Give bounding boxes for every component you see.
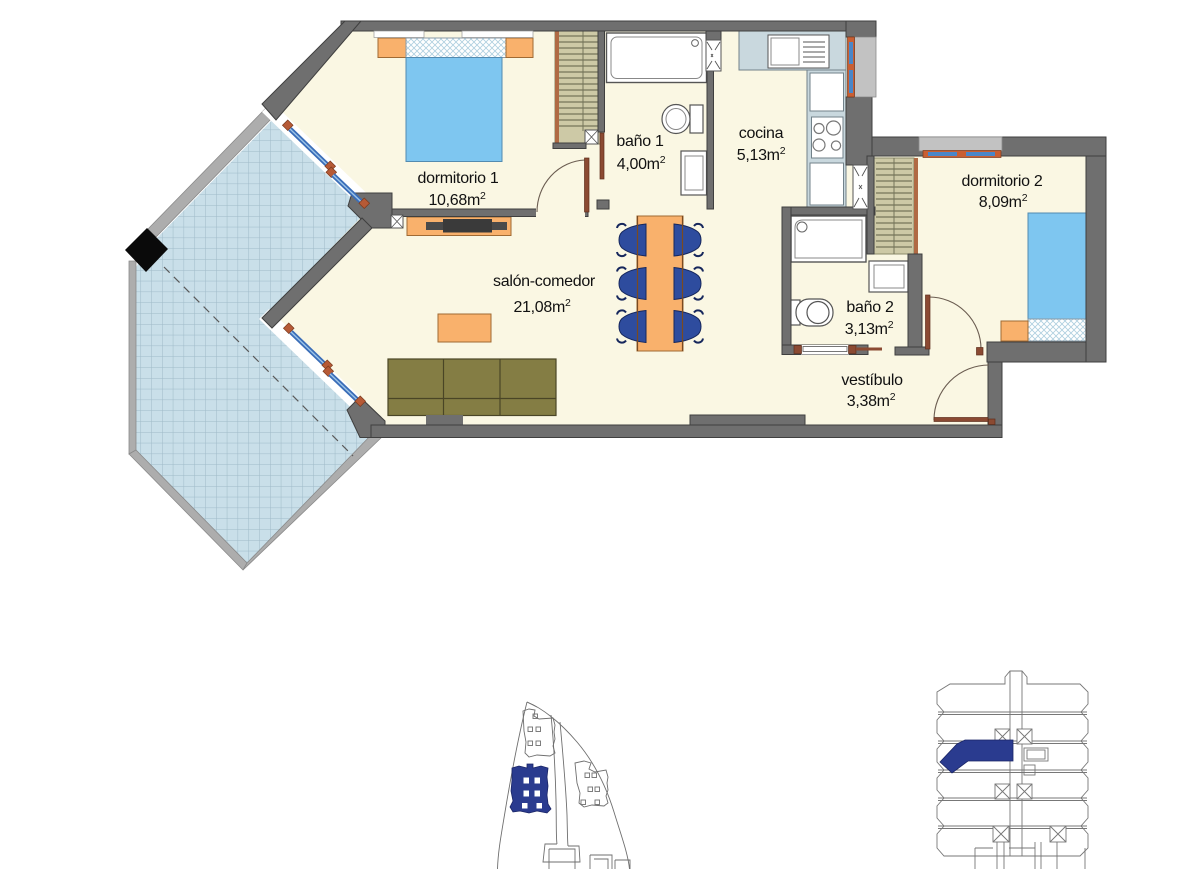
svg-text:5,13m2: 5,13m2 [737,145,786,164]
svg-text:4,00m2: 4,00m2 [617,154,666,173]
svg-text:dormitorio 2: dormitorio 2 [962,173,1043,190]
svg-text:3,13m2: 3,13m2 [845,319,894,338]
svg-text:3,38m2: 3,38m2 [847,391,896,410]
svg-text:21,08m2: 21,08m2 [513,297,571,316]
svg-text:10,68m2: 10,68m2 [428,190,486,209]
svg-text:8,09m2: 8,09m2 [979,192,1028,211]
svg-text:vestíbulo: vestíbulo [841,372,903,389]
svg-text:baño 2: baño 2 [846,299,894,316]
svg-text:salón-comedor: salón-comedor [493,273,596,290]
svg-text:dormitorio 1: dormitorio 1 [418,170,499,187]
svg-text:baño 1: baño 1 [616,133,664,150]
svg-text:cocina: cocina [739,125,784,142]
